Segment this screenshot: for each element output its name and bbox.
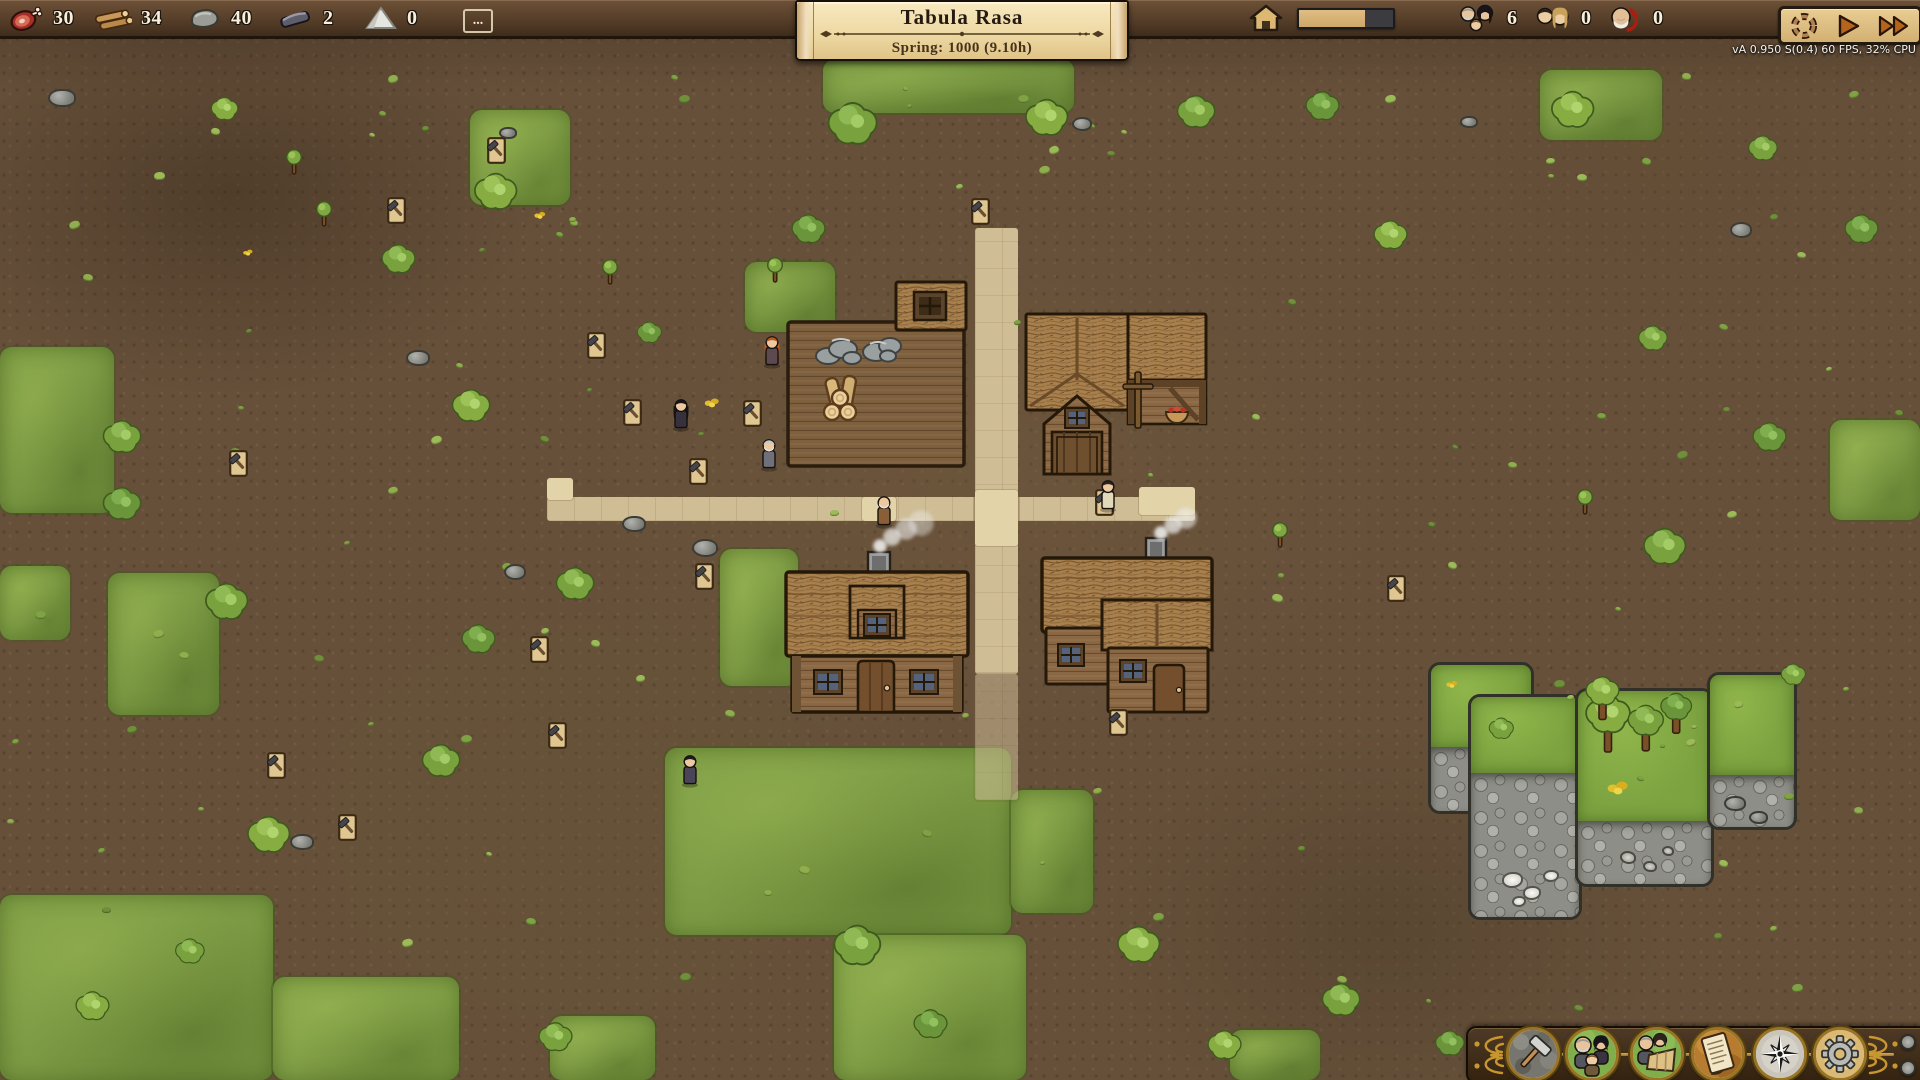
logs-icon [92,3,132,33]
tree[interactable] [1583,670,1622,723]
grass-tuft [1719,323,1729,332]
house-icon [1248,3,1284,33]
grass-tuft [525,917,536,926]
villager[interactable] [1097,479,1119,513]
resource-count: 0 [407,7,418,30]
grass-tuft [1792,983,1803,992]
grass-tuft [378,110,385,116]
tree[interactable] [419,737,463,781]
grass-tuft [314,654,325,662]
build-marker-sign[interactable] [548,722,567,749]
grass-tuft [539,434,549,443]
tree[interactable] [73,985,112,1024]
grass-tuft [540,627,549,635]
grass-tuft [1676,450,1689,461]
tree[interactable] [1022,91,1071,140]
fast-forward-button[interactable] [1877,13,1911,39]
grass-tuft [1825,367,1832,372]
boulder[interactable] [1724,796,1746,811]
tree[interactable] [1174,88,1218,132]
grass-tuft [343,540,350,545]
grass-tuft [1546,157,1555,164]
grass-patch [1830,420,1920,520]
build-marker-sign[interactable] [1109,709,1128,736]
grass-tuft [1895,410,1904,417]
grass-tuft [671,75,679,82]
grass-tuft [1288,298,1298,306]
grass-tuft [1577,174,1587,181]
tree[interactable] [100,480,144,524]
build-marker-sign[interactable] [1387,575,1406,602]
housing-progress-bar [1297,8,1395,29]
grass-tuft [1769,925,1777,931]
population-elder-ban: 0 [1604,0,1664,36]
build-marker-sign[interactable] [338,814,357,841]
tree[interactable] [830,916,885,971]
grass-tuft [1723,407,1730,412]
build-marker-sign[interactable] [587,332,606,359]
build-marker-sign[interactable] [743,400,762,427]
grass-tuft [1271,593,1283,603]
tree[interactable] [1658,687,1694,736]
villager[interactable] [670,398,692,432]
resource-sand: 0 [364,0,418,36]
pause-button[interactable] [1789,11,1819,41]
grass-tuft [1574,1004,1584,1012]
build-marker-sign[interactable] [267,752,286,779]
grass-tuft [211,128,221,136]
grass-tuft [11,738,20,745]
flower-patch [242,248,254,256]
build-marker-sign[interactable] [530,636,549,663]
build-marker-sign[interactable] [487,137,506,164]
grass-tuft [178,651,189,659]
grass-tuft [698,432,704,436]
grass-tuft [486,852,493,857]
population-family: 6 [1456,0,1518,36]
population-couple: 0 [1532,0,1592,36]
grass-tuft [1452,444,1459,450]
world-map[interactable] [0,0,1920,1080]
resource-count: 2 [323,7,334,30]
resource-stone: 40 [186,0,252,36]
cliff-stone-face [1578,821,1711,884]
build-marker-sign[interactable] [971,198,990,225]
tree[interactable] [1746,130,1780,164]
grass-tuft [7,819,14,824]
sapling[interactable] [283,147,305,177]
grass-tuft [1092,787,1102,795]
grass-tuft [678,94,690,103]
sand-icon [364,4,398,32]
tree[interactable] [1433,1025,1467,1059]
grass-tuft [238,406,244,411]
villager[interactable] [758,438,780,472]
grass-tuft [154,172,165,180]
iron-icon [276,4,314,32]
grass-tuft [1447,561,1458,570]
cliff-terrace [1707,672,1797,830]
grass-tuft [1718,859,1729,868]
tree[interactable] [1303,85,1342,124]
flower-patch [1445,679,1459,689]
toolbar-flourish-icon [1866,1032,1902,1078]
grass-tuft [1842,686,1848,691]
grass-patch [273,977,459,1080]
panel-toggle-bottom-button[interactable] [1900,1060,1916,1076]
grass-patch [0,566,70,640]
building-cottage2[interactable] [1036,528,1218,716]
grass-tuft [246,328,253,334]
journal-button[interactable] [1691,1027,1745,1080]
villager[interactable] [679,754,701,788]
navigation-button[interactable] [1753,1027,1807,1080]
grass-tuft [198,807,204,811]
grass-tuft [1548,174,1554,178]
sapling[interactable] [313,199,335,229]
grass-tuft [587,387,593,392]
chimney-smoke [1175,507,1197,529]
dirt-path-faded [975,674,1018,800]
boulder[interactable] [1749,811,1768,824]
tree[interactable] [1371,214,1410,253]
grass-tuft [764,889,773,895]
tree[interactable] [1548,83,1597,132]
grass-tuft [1428,522,1436,528]
grass-tuft [556,231,564,238]
build-menu-button[interactable] [1506,1027,1560,1080]
grass-tuft [478,247,485,253]
grass-tuft [126,725,138,734]
grass-patch [0,347,114,513]
grass-tuft [1769,213,1778,220]
meat-icon [8,3,44,33]
grass-tuft [955,184,963,191]
tree[interactable] [379,238,418,277]
tree[interactable] [244,808,293,857]
tree[interactable] [100,413,144,457]
population-count: 6 [1507,7,1518,30]
grass-tuft [1107,150,1115,156]
grass-tuft [635,675,645,683]
grass-tuft [369,132,376,138]
game-viewport: 30 34 40 2 0 ... 6 0 0 [0,0,1920,1080]
flower-patch [533,210,547,220]
professions-button[interactable] [1630,1027,1684,1080]
tree[interactable] [1636,320,1670,354]
grass-tuft [68,219,81,230]
couple-icon [1532,2,1572,34]
villager[interactable] [873,495,895,529]
mineral-deposit[interactable] [1523,886,1541,900]
elder-ban-icon [1604,2,1644,34]
banner-divider [812,29,1112,39]
rock-debris [1643,861,1657,872]
sapling[interactable] [599,257,621,287]
grass-tuft [1507,461,1516,468]
villagers-button[interactable] [1565,1027,1619,1080]
grass-tuft [1597,412,1606,419]
flower-patch [703,396,721,409]
boulder[interactable] [1072,117,1092,131]
settlement-banner: Tabula Rasa Spring: 1000 (9.10h) [795,0,1129,61]
settlement-name: Tabula Rasa [797,5,1127,30]
build-marker-sign[interactable] [387,197,406,224]
playback-controls [1778,6,1920,45]
building-cottage[interactable] [780,536,974,716]
sapling[interactable] [764,255,786,285]
dirt-path-tile [547,478,573,500]
tree[interactable] [553,560,597,604]
resource-meat: 30 [8,0,74,36]
tree[interactable] [1640,520,1689,569]
dirt-path-tile [975,490,1018,546]
build-marker-sign[interactable] [623,399,642,426]
more-resources-button[interactable]: ... [463,9,493,33]
villager[interactable] [761,335,783,369]
grass-tuft [680,973,692,982]
grass-tuft [387,486,398,495]
grass-tuft [97,847,105,854]
grass-tuft [82,273,93,281]
boulder[interactable] [1460,116,1478,129]
settings-button[interactable] [1813,1027,1867,1080]
tree[interactable] [1842,208,1881,247]
housing-status [1248,0,1395,36]
rock-debris [1620,851,1636,864]
flower-patch [1605,778,1631,796]
grass-tuft [1727,510,1738,519]
grass-tuft [1426,998,1432,1003]
dirt-path [975,228,1018,674]
resource-iron: 2 [276,0,334,36]
panel-toggle-top-button[interactable] [1900,1034,1916,1050]
bottom-toolbar [1466,1026,1920,1080]
grass-tuft [430,435,443,446]
cliff-terrace [1468,694,1582,920]
grass-tuft [1714,933,1722,939]
housing-progress-fill [1299,10,1365,27]
grass-tuft [1848,90,1860,100]
tree[interactable] [1205,1024,1244,1063]
grass-tuft [456,363,464,369]
version-fps-readout: vA 0.950 S(0.4) 60 FPS, 32% CPU [1732,43,1916,56]
boulder[interactable] [622,516,646,532]
grass-tuft [1048,145,1060,155]
stone-icon [186,4,222,32]
grass-tuft [1615,606,1622,612]
tree[interactable] [1487,713,1516,742]
tree[interactable] [789,208,828,247]
tree[interactable] [1750,416,1789,455]
build-marker-sign[interactable] [689,458,708,485]
toolbar-flourish-icon [1470,1032,1506,1078]
rock-debris [1662,846,1674,856]
tree[interactable] [1319,976,1363,1020]
grass-patch [0,895,273,1080]
population-count: 0 [1581,7,1592,30]
mineral-deposit[interactable] [1502,872,1523,888]
boulder[interactable] [504,564,526,579]
boulder[interactable] [692,539,718,557]
tree[interactable] [209,92,240,123]
grass-tuft [367,721,374,727]
tree[interactable] [911,1003,950,1042]
grass-tuft [1553,680,1564,688]
tree[interactable] [471,165,520,214]
grass-tuft [402,938,414,948]
grass-tuft [421,125,429,131]
family-icon [1456,2,1498,34]
grass-tuft [1384,94,1396,104]
grass-patch [665,748,1011,935]
tree[interactable] [449,382,493,426]
resource-count: 30 [53,7,74,30]
grass-tuft [1854,807,1864,814]
grass-tuft [725,709,736,718]
resource-count: 34 [141,7,162,30]
tree[interactable] [1114,918,1163,967]
grass-tuft [1251,413,1260,421]
building-barn[interactable] [1020,308,1212,476]
boulder[interactable] [406,350,430,366]
tree[interactable] [1779,659,1808,688]
building-storage[interactable] [780,278,972,472]
tree[interactable] [635,317,664,346]
tree[interactable] [173,933,207,967]
population-count: 0 [1653,7,1664,30]
grass-tuft [35,611,46,619]
tree[interactable] [536,1016,575,1055]
build-marker-sign[interactable] [229,450,248,477]
grass-tuft [1298,845,1305,850]
boulder[interactable] [1730,222,1752,237]
date-display: Spring: 1000 (9.10h) [797,40,1127,57]
tree[interactable] [202,575,251,624]
sapling[interactable] [1269,520,1291,550]
build-marker-sign[interactable] [695,563,714,590]
chimney-smoke [908,510,934,536]
grass-tuft [590,639,601,648]
boulder[interactable] [48,89,76,108]
cliff-grass-top [1710,675,1794,775]
grass-tuft [387,73,399,83]
resource-count: 40 [231,7,252,30]
grass-tuft [1278,573,1285,578]
resource-logs: 34 [92,0,162,36]
grass-tuft [1038,164,1050,174]
tree[interactable] [824,93,881,150]
grass-tuft [1120,129,1127,135]
grass-patch [1230,1030,1320,1080]
tree[interactable] [459,618,498,657]
play-button[interactable] [1835,13,1861,39]
sapling[interactable] [1574,487,1596,517]
grass-tuft [1796,251,1806,258]
grass-patch [1011,790,1093,913]
grass-tuft [1682,73,1692,80]
grass-tuft [1642,157,1652,165]
